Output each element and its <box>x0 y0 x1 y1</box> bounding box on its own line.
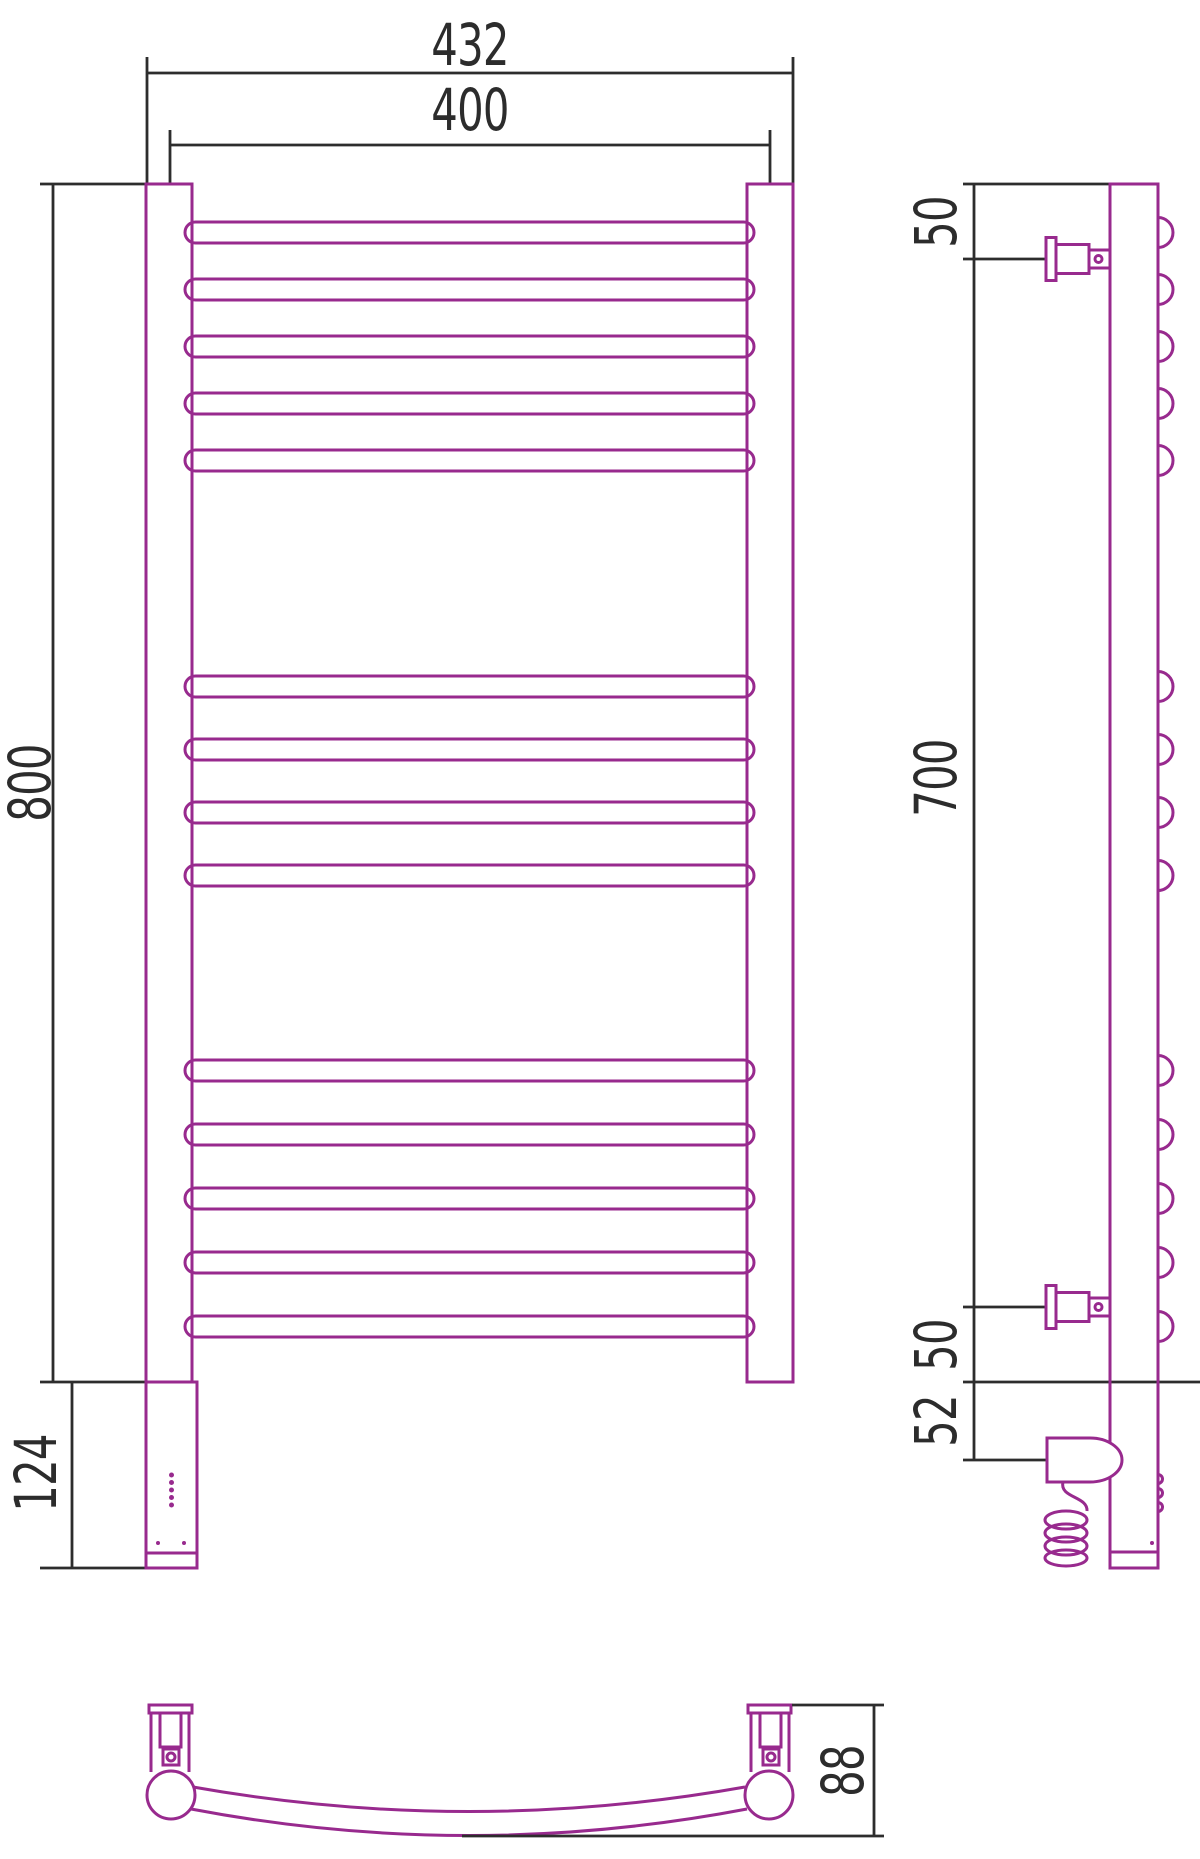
dim-overall-width-label: 432 <box>431 11 509 79</box>
wall-bracket-top <box>1046 238 1110 281</box>
curved-rung-front-edge <box>193 1787 745 1812</box>
bracket-connector <box>1089 1298 1110 1316</box>
dim-bracket-span-label: 700 <box>902 739 970 817</box>
bracket-body <box>1056 1293 1089 1322</box>
dim-depth-label: 88 <box>809 1745 877 1797</box>
bracket-pivot <box>1095 1304 1102 1311</box>
drawing-canvas: 432 400 800 124 50 700 50 52 <box>0 0 1200 1859</box>
rung <box>185 1316 754 1337</box>
bracket-connector <box>763 1749 779 1765</box>
rung <box>185 1188 754 1209</box>
bracket-pivot <box>167 1753 175 1761</box>
front-view: 432 400 800 124 <box>0 11 793 1568</box>
rung <box>185 279 754 300</box>
rung <box>185 1124 754 1145</box>
rung <box>185 802 754 823</box>
bottom-view-right-collector <box>745 1771 793 1819</box>
rung-end <box>1158 735 1173 765</box>
rung <box>185 450 754 471</box>
side-dimensions: 50 700 50 52 <box>902 184 1200 1460</box>
screw-dot <box>182 1541 186 1545</box>
led-dot <box>169 1480 174 1485</box>
rung-end <box>1158 275 1173 305</box>
dim-bottom-section-label: 124 <box>2 1434 70 1512</box>
dim-bottom-bracket-offset-label: 50 <box>902 1319 970 1371</box>
rung-end <box>1158 332 1173 362</box>
side-rung-ends <box>1158 218 1173 1342</box>
rung-end <box>1158 218 1173 248</box>
bracket-body <box>1056 245 1089 274</box>
dim-height-label: 800 <box>0 744 64 822</box>
dim-center-width-label: 400 <box>431 76 509 144</box>
rung <box>185 676 754 697</box>
rung-end <box>1158 389 1173 419</box>
rung-end <box>1158 1312 1173 1342</box>
rung <box>185 393 754 414</box>
rung <box>185 336 754 357</box>
led-indicators <box>169 1473 174 1508</box>
bracket-connector <box>163 1749 179 1765</box>
rung-end <box>1158 861 1173 891</box>
control-unit <box>146 1382 197 1568</box>
wall-bracket-bottom <box>1046 1286 1110 1329</box>
bottom-view-left-collector <box>147 1771 195 1819</box>
rung <box>185 1060 754 1081</box>
front-rungs <box>185 222 754 1337</box>
bracket-pivot <box>1095 256 1102 263</box>
rung-end <box>1158 1184 1173 1214</box>
dim-top-bracket-offset-label: 50 <box>902 196 970 248</box>
bracket-body <box>760 1713 781 1747</box>
side-view: 50 700 50 52 <box>902 184 1200 1568</box>
screw-dot <box>156 1541 160 1545</box>
rung-end <box>1158 672 1173 702</box>
cable-lead <box>1063 1482 1087 1511</box>
rung-end <box>1158 1248 1173 1278</box>
side-screw-dot <box>1150 1541 1154 1545</box>
rung-end <box>1158 798 1173 828</box>
bottom-view-right-bracket <box>748 1705 791 1772</box>
rung <box>185 222 754 243</box>
rung <box>185 739 754 760</box>
bracket-pivot <box>767 1753 775 1761</box>
bracket-connector <box>1089 250 1110 268</box>
cable-coil <box>1045 1550 1087 1566</box>
control-unit-screws <box>156 1541 186 1545</box>
bottom-view: 88 <box>147 1705 884 1836</box>
led-dot <box>169 1503 174 1508</box>
technical-drawing: 432 400 800 124 50 700 50 52 <box>0 0 1200 1859</box>
bracket-body <box>160 1713 181 1747</box>
bottom-view-left-bracket <box>149 1705 192 1772</box>
power-cable-spiral <box>1045 1482 1087 1566</box>
led-dot <box>169 1495 174 1500</box>
dim-heater-offset-label: 52 <box>902 1395 970 1447</box>
rung <box>185 1252 754 1273</box>
rung-end <box>1158 446 1173 476</box>
rung <box>185 865 754 886</box>
front-dimensions: 432 400 800 124 <box>0 11 793 1568</box>
rung-end <box>1158 1120 1173 1150</box>
rung-end <box>1158 1056 1173 1086</box>
heating-element <box>1047 1438 1122 1482</box>
led-dot <box>169 1473 174 1478</box>
led-dot <box>169 1488 174 1493</box>
side-collector-profile <box>1110 184 1158 1568</box>
bottom-dimensions: 88 <box>462 1705 884 1836</box>
